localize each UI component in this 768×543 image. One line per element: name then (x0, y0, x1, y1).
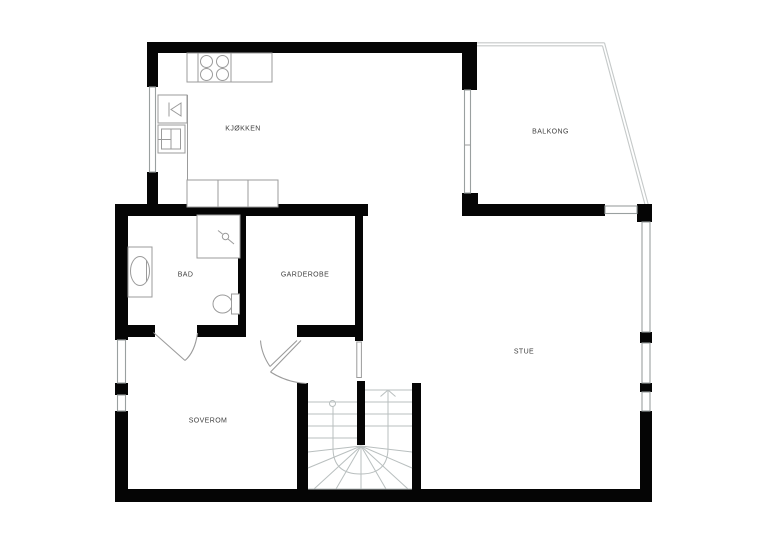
floor-plan-drawing: KJØKKEN BALKONG BAD GARDEROBE STUE SOVER… (0, 0, 768, 543)
balcony-door (605, 206, 637, 214)
door-swing-arc (261, 341, 271, 367)
kitchen-cabinets-lower (187, 180, 278, 207)
stue-door-leaf (357, 342, 362, 378)
wall-left-pier (115, 383, 128, 395)
window-right-1 (642, 222, 650, 332)
bad-door (154, 333, 198, 361)
door-leaf (271, 341, 302, 373)
window-kitchen-left (150, 87, 156, 172)
garderobe-door (261, 341, 298, 367)
door-leaf (270, 341, 297, 367)
toilet-tank-icon (232, 294, 240, 314)
room-label-garderobe: GARDEROBE (281, 272, 329, 279)
wall-garderobe-bottom (297, 325, 355, 337)
bathroom-fixtures (128, 215, 240, 314)
stair-winder-treads (308, 446, 412, 489)
wall-stair-stringer (357, 381, 365, 445)
wall-kitchen-balcony-upper (462, 42, 477, 90)
room-label-kjokken: KJØKKEN (225, 126, 260, 133)
wall-left-lower (115, 411, 128, 502)
room-label-stue: STUE (514, 349, 534, 356)
toilet-bowl-icon (213, 295, 232, 313)
balcony-rail-slant-outer (605, 43, 649, 206)
wall-bad-bottom-left (126, 325, 155, 337)
stove-burner-icon (217, 69, 229, 81)
door-swing-arc (185, 333, 198, 361)
wall-bottom (115, 489, 652, 502)
room-label-soverom: SOVEROM (189, 418, 228, 425)
wall-top (148, 42, 473, 53)
window-right-3 (642, 392, 650, 411)
wall-soverom-right (297, 383, 308, 489)
doors (154, 333, 362, 384)
shower-head-icon (222, 233, 228, 239)
room-labels: KJØKKEN BALKONG BAD GARDEROBE STUE SOVER… (178, 126, 569, 425)
balcony-rail-slant-inner (603, 46, 646, 207)
wall-right-pier-2 (640, 383, 652, 392)
wall-right-top-corner (637, 204, 652, 222)
window-left-2 (118, 395, 126, 411)
room-label-bad: BAD (178, 272, 194, 279)
stove-burner-icon (201, 56, 213, 68)
wall-stue-top (462, 204, 605, 216)
wall-kitchen-left-lower (147, 172, 158, 204)
balcony-railing (475, 43, 649, 207)
wall-stair-right (412, 383, 421, 489)
walls (115, 42, 652, 502)
room-label-balkong: BALKONG (532, 129, 569, 136)
door-swing-arc (271, 372, 307, 384)
shower (197, 215, 240, 258)
wall-bad-bottom-mid (197, 325, 246, 337)
window-right-2 (642, 343, 650, 383)
window-left-1 (118, 340, 126, 383)
soverom-door (271, 341, 307, 384)
stove-burner-icon (201, 69, 213, 81)
newel-circle (330, 401, 336, 407)
wall-left-upper (115, 216, 128, 340)
wall-right-lower (640, 411, 652, 502)
floor-plan: KJØKKEN BALKONG BAD GARDEROBE STUE SOVER… (0, 0, 768, 543)
wall-garderobe-right (355, 216, 363, 341)
wall-kitchen-left-upper (147, 42, 158, 87)
door-leaf (154, 333, 186, 361)
window-kitchen-balcony (465, 90, 471, 193)
wall-right-pier-1 (640, 332, 652, 343)
stove-burner-icon (217, 56, 229, 68)
